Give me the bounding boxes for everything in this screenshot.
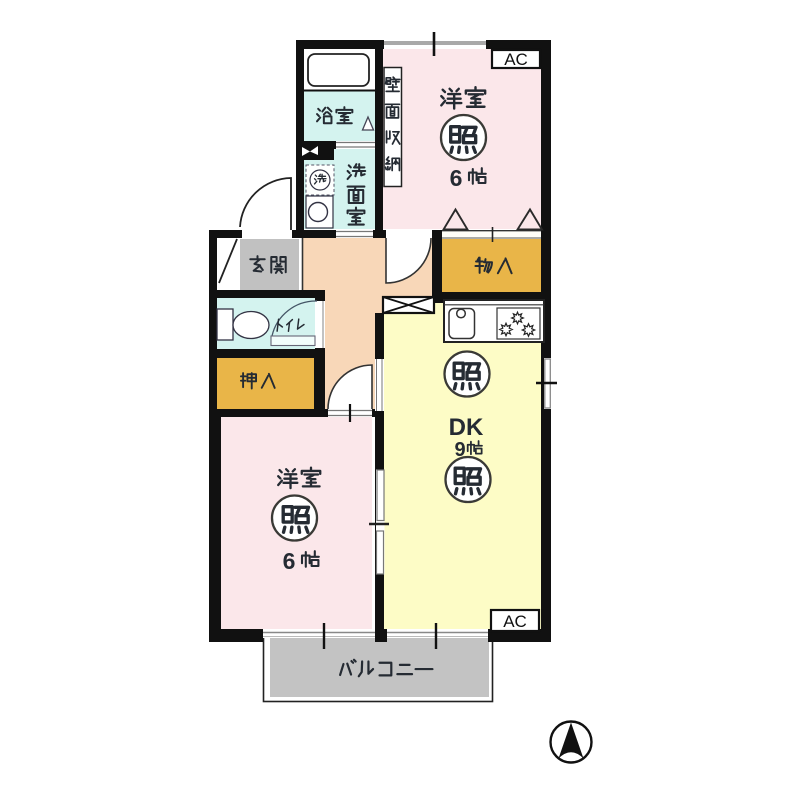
svg-text:AC: AC <box>504 50 528 69</box>
svg-text:9: 9 <box>454 439 465 461</box>
svg-text:6: 6 <box>283 548 296 574</box>
svg-text:6: 6 <box>450 165 463 191</box>
svg-text:AC: AC <box>503 612 527 631</box>
svg-text:DK: DK <box>449 414 484 441</box>
